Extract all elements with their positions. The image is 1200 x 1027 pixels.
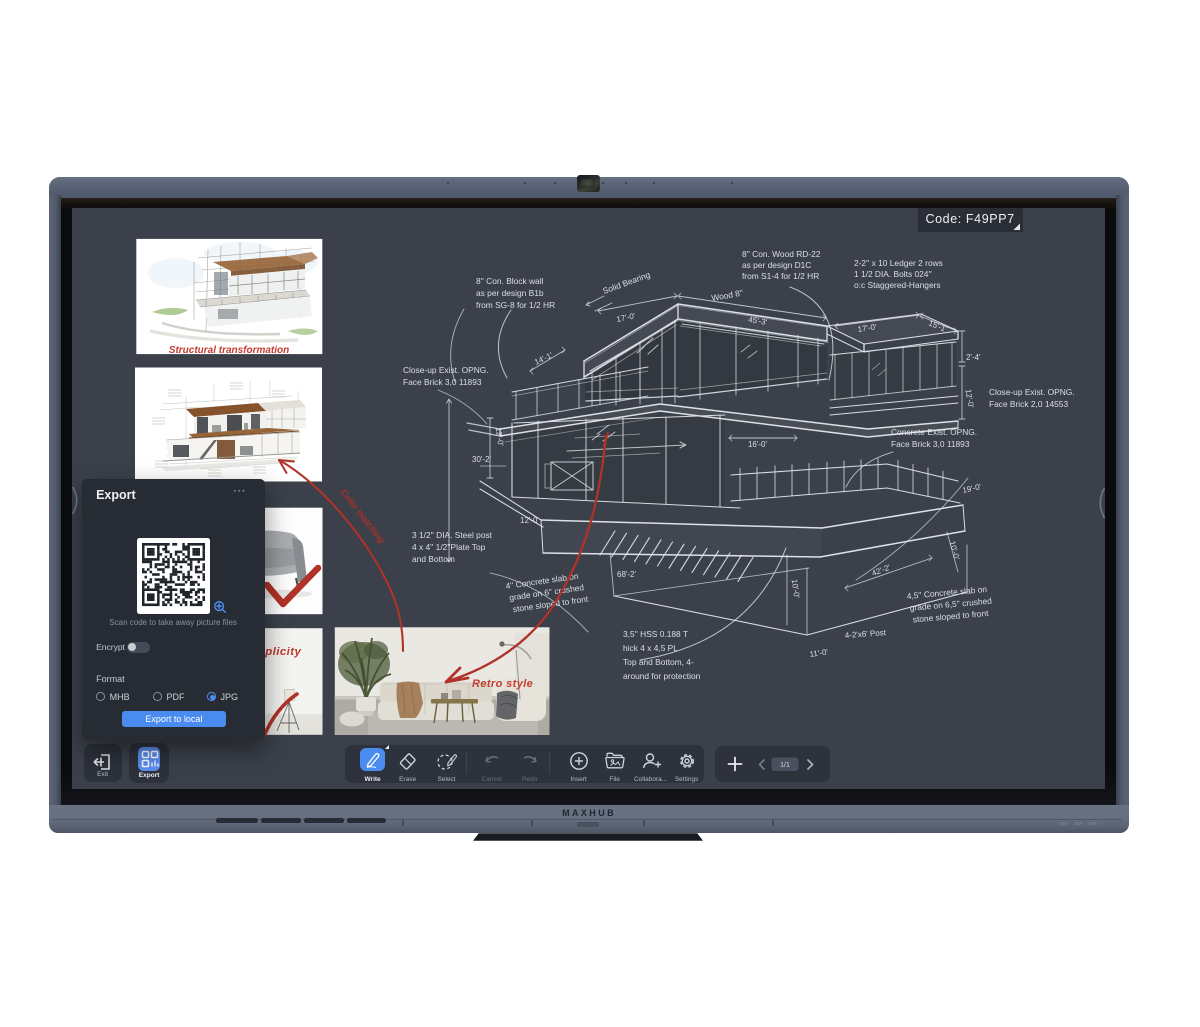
svg-text:12'-0': 12'-0' [963,388,975,409]
svg-text:Solid Bearing: Solid Bearing [601,269,652,296]
svg-text:as per design B1b: as per design B1b [476,288,544,298]
svg-text:8'' Con. Block wall: 8'' Con. Block wall [476,276,544,286]
svg-text:Top and Bottom, 4-: Top and Bottom, 4- [623,657,694,667]
svg-text:4 x 4'' 1/2''Plate Top: 4 x 4'' 1/2''Plate Top [412,542,486,552]
svg-text:and Bottom: and Bottom [412,554,455,564]
svg-text:68'-2': 68'-2' [617,570,637,579]
svg-text:around for protection: around for protection [623,671,701,681]
svg-text:10'-0': 10'-0' [789,578,801,599]
svg-text:from S1-4 for 1/2 HR: from S1-4 for 1/2 HR [742,271,819,281]
svg-text:16'-0': 16'-0' [748,440,768,449]
svg-text:4-2'x6' Post: 4-2'x6' Post [844,628,887,640]
svg-text:Wood 8'': Wood 8'' [710,287,744,302]
svg-text:10'-0': 10'-0' [947,540,961,561]
svg-text:3,5'' HSS 0.188 T: 3,5'' HSS 0.188 T [623,629,688,639]
svg-text:o:c Staggered-Hangers: o:c Staggered-Hangers [854,280,941,290]
svg-text:30'-2': 30'-2' [472,455,492,464]
svg-text:1 1/2 DIA. Bolts 024'': 1 1/2 DIA. Bolts 024'' [854,269,932,279]
svg-text:from SG-8 for 1/2 HR: from SG-8 for 1/2 HR [476,300,555,310]
svg-text:Color matching: Color matching [338,487,387,545]
svg-text:17'-0': 17'-0' [615,311,636,324]
svg-text:12'-0': 12'-0' [493,426,505,447]
svg-text:12'-0: 12'-0 [520,516,538,525]
svg-text:2-2'' x 10 Ledger 2 rows: 2-2'' x 10 Ledger 2 rows [854,258,943,268]
svg-text:Concrete Exist. OPNG.: Concrete Exist. OPNG. [891,427,977,437]
svg-text:2'-4': 2'-4' [966,353,981,362]
svg-text:14'-1': 14'-1' [533,350,554,366]
svg-text:Close-up Exist. OPNG.: Close-up Exist. OPNG. [403,365,489,375]
svg-text:as per design D1C: as per design D1C [742,260,811,270]
svg-text:hick 4 x 4,5 PL: hick 4 x 4,5 PL [623,643,678,653]
svg-text:Face Brick 3,0 11893: Face Brick 3,0 11893 [403,377,482,387]
svg-text:Face Brick 3,0 11893: Face Brick 3,0 11893 [891,439,970,449]
svg-text:8'' Con. Wood RD-22: 8'' Con. Wood RD-22 [742,249,821,259]
svg-text:3 1/2'' DIA. Steel post: 3 1/2'' DIA. Steel post [412,530,493,540]
svg-text:1/1: 1/1 [780,762,790,769]
svg-text:Face Brick 2,0 14553: Face Brick 2,0 14553 [989,399,1068,409]
svg-text:11'-0': 11'-0' [809,647,829,659]
svg-text:19'-0': 19'-0' [961,482,982,495]
svg-text:Close-up Exist. OPNG.: Close-up Exist. OPNG. [989,387,1075,397]
svg-text:Retro style: Retro style [472,678,533,690]
svg-text:Structural transformation: Structural transformation [168,345,288,356]
